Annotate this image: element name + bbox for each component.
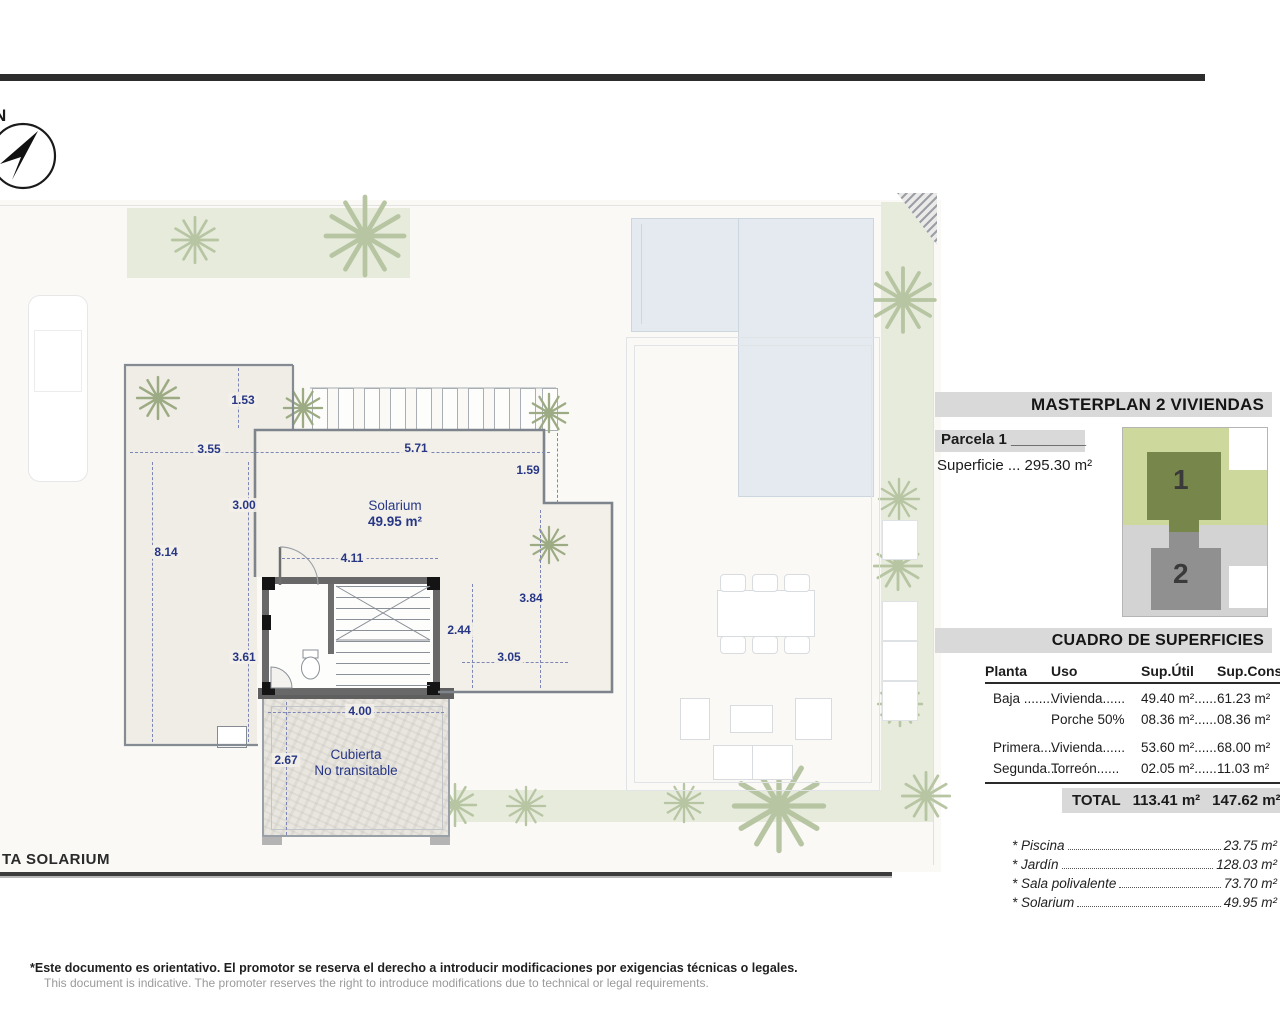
table-row: Primera.... Vivienda...... 53.60 m².....… — [985, 737, 1280, 758]
ghost-armchair — [795, 698, 832, 740]
dimension-label: 1.59 — [513, 463, 542, 477]
cell: 08.36 m²...... — [1141, 712, 1217, 727]
dimension-line — [557, 433, 558, 503]
ghost-coffee-table — [730, 705, 773, 733]
pergola-slat — [390, 388, 406, 431]
site-notch — [1229, 566, 1268, 608]
extra-value: 128.03 m² — [1216, 857, 1277, 872]
bathroom-wall — [328, 584, 334, 654]
dimension-label: 3.61 — [229, 650, 258, 664]
site-plot2-number: 2 — [1173, 558, 1189, 590]
extra-value: 49.95 m² — [1224, 895, 1277, 910]
ghost-chair — [784, 636, 810, 654]
dotted-leader — [1077, 906, 1220, 907]
dimension-label: 3.84 — [516, 591, 545, 605]
ghost-dining-table — [717, 590, 815, 637]
cubierta-label: Cubierta No transitable — [296, 747, 416, 779]
cell: 08.36 m² — [1217, 712, 1280, 727]
cell: 61.23 m² — [1217, 691, 1280, 706]
cell: Vivienda...... — [1051, 740, 1141, 755]
dimension-line — [152, 462, 153, 742]
cell: Torreón...... — [1051, 761, 1141, 776]
table-row: Porche 50% 08.36 m²...... 08.36 m² — [985, 709, 1280, 730]
cell: Primera.... — [985, 740, 1051, 755]
cuadro-title: CUADRO DE SUPERFICIES — [1052, 632, 1264, 650]
total-bar: TOTAL 113.41 m² 147.62 m² — [1062, 788, 1280, 813]
dimension-label: 5.71 — [401, 441, 430, 455]
cell: Segunda... — [985, 761, 1051, 776]
extra-row: * Jardín 128.03 m² — [1012, 853, 1277, 872]
pergola-slat — [364, 388, 380, 431]
pergola-slat — [468, 388, 484, 431]
extra-row: * Solarium 49.95 m² — [1012, 891, 1277, 910]
ghost-car-window — [34, 330, 82, 392]
plan-title-label: TA SOLARIUM — [2, 851, 110, 868]
cell: 49.40 m²...... — [1141, 691, 1217, 706]
pergola-slat — [442, 388, 458, 431]
parcela-label: Parcela 1 _________ — [941, 431, 1086, 448]
structural-post — [262, 577, 275, 590]
cell: 53.60 m²...... — [1141, 740, 1217, 755]
extra-value: 73.70 m² — [1224, 876, 1277, 891]
col-sup-const: Sup.Const. — [1217, 663, 1280, 679]
cell: Vivienda...... — [1051, 691, 1141, 706]
extras-list: * Piscina 23.75 m² * Jardín 128.03 m² * … — [1012, 834, 1277, 910]
table-row: Baja ........ Vivienda...... 49.40 m²...… — [985, 688, 1280, 709]
dotted-leader — [1068, 849, 1221, 850]
cell: 68.00 m² — [1217, 740, 1280, 755]
dimension-label: 3.55 — [194, 442, 223, 456]
palm-tree-icon — [868, 265, 938, 335]
ghost-sofa — [713, 745, 754, 780]
cubierta-line1: Cubierta — [296, 747, 416, 763]
north-arrow-icon — [0, 118, 60, 192]
ghost-kitchen-unit — [882, 641, 918, 681]
dimension-line — [286, 702, 287, 835]
tree-icon — [135, 375, 181, 421]
site-diagram: 1 2 — [1122, 427, 1268, 617]
cubierta-line2: No transitable — [296, 763, 416, 779]
extra-value: 23.75 m² — [1224, 838, 1277, 853]
stair-treads — [336, 586, 430, 688]
tree-icon — [529, 525, 569, 565]
disclaimer-es: *Este documento es orientativo. El promo… — [30, 961, 798, 975]
surfaces-table: Planta Uso Sup.Útil Sup.Const. Baja ....… — [985, 660, 1280, 784]
disclaimer-en: This document is indicative. The promote… — [44, 976, 709, 990]
total-rule — [985, 782, 1280, 784]
dimension-label: 4.00 — [345, 704, 374, 718]
tree-icon — [528, 392, 570, 434]
superficie-label: Superficie ... 295.30 m² — [937, 457, 1092, 474]
cuadro-title-bar: CUADRO DE SUPERFICIES — [935, 628, 1272, 653]
plot-boundary-line — [0, 205, 935, 206]
palm-tree-icon — [900, 770, 952, 822]
site-notch — [1229, 428, 1268, 470]
extra-label: * Piscina — [1012, 838, 1065, 853]
total-const: 147.62 m² — [1212, 792, 1280, 809]
palm-tree-icon — [877, 477, 921, 521]
cubierta-foot — [430, 837, 450, 845]
site-plot1-number: 1 — [1173, 464, 1189, 496]
cell: Baja ........ — [985, 691, 1051, 706]
palm-tree-icon — [170, 215, 220, 265]
dimension-label: 1.53 — [228, 393, 257, 407]
structural-post — [262, 682, 275, 695]
ghost-kitchen-unit — [882, 520, 918, 560]
dimension-label: 2.44 — [444, 623, 473, 637]
structural-post — [262, 615, 271, 630]
table-header-row: Planta Uso Sup.Útil Sup.Const. — [985, 660, 1280, 681]
ghost-sofa — [752, 745, 793, 780]
ghost-armchair — [680, 698, 710, 740]
pergola-slat — [494, 388, 510, 431]
ghost-chair — [784, 574, 810, 592]
dimension-label: 3.05 — [494, 650, 523, 664]
dimension-label: 3.00 — [229, 498, 258, 512]
col-sup-util: Sup.Útil — [1141, 663, 1217, 679]
cell: 02.05 m²...... — [1141, 761, 1217, 776]
dotted-leader — [1119, 887, 1220, 888]
dotted-leader — [1062, 868, 1214, 869]
total-label: TOTAL — [1072, 792, 1121, 809]
room-name: Solarium — [340, 498, 450, 514]
total-util: 113.41 m² — [1133, 792, 1201, 809]
ghost-chair — [752, 636, 778, 654]
ghost-chair — [720, 636, 746, 654]
dimension-line — [130, 452, 550, 453]
masterplan-title: MASTERPLAN 2 VIVIENDAS — [1031, 395, 1264, 415]
room-area: 49.95 m² — [340, 514, 450, 530]
col-uso: Uso — [1051, 663, 1141, 679]
pool-inner-line — [641, 224, 642, 324]
site-building-2-tab — [1169, 532, 1199, 550]
pergola-slat — [416, 388, 432, 431]
pool-small — [631, 218, 740, 332]
dimension-label: 8.14 — [151, 545, 180, 559]
ghost-chair — [720, 574, 746, 592]
extra-label: * Solarium — [1012, 895, 1074, 910]
solarium-room-label: Solarium 49.95 m² — [340, 498, 450, 530]
pergola-slat — [338, 388, 354, 431]
palm-tree-icon — [505, 785, 547, 827]
extra-row: * Piscina 23.75 m² — [1012, 834, 1277, 853]
col-planta: Planta — [985, 663, 1051, 679]
ghost-kitchen-unit — [882, 601, 918, 641]
top-rule — [0, 74, 1205, 81]
ghost-kitchen-unit — [882, 681, 918, 721]
palm-tree-icon — [322, 193, 408, 279]
cubierta-foot — [262, 837, 282, 845]
terrace-gate — [217, 726, 247, 748]
cell: Porche 50% — [1051, 712, 1141, 727]
dimension-label: 4.11 — [338, 551, 367, 565]
extra-label: * Sala polivalente — [1012, 876, 1116, 891]
tree-icon — [282, 387, 324, 429]
table-row: Segunda... Torreón...... 02.05 m²...... … — [985, 758, 1280, 779]
cell: 11.03 m² — [1217, 761, 1280, 776]
extra-label: * Jardín — [1012, 857, 1059, 872]
masterplan-sheet: N — [0, 0, 1280, 1024]
bottom-rule-light — [0, 876, 892, 878]
masterplan-title-bar: MASTERPLAN 2 VIVIENDAS — [935, 392, 1272, 417]
header-rule — [985, 682, 1280, 684]
extra-row: * Sala polivalente 73.70 m² — [1012, 872, 1277, 891]
ghost-chair — [752, 574, 778, 592]
